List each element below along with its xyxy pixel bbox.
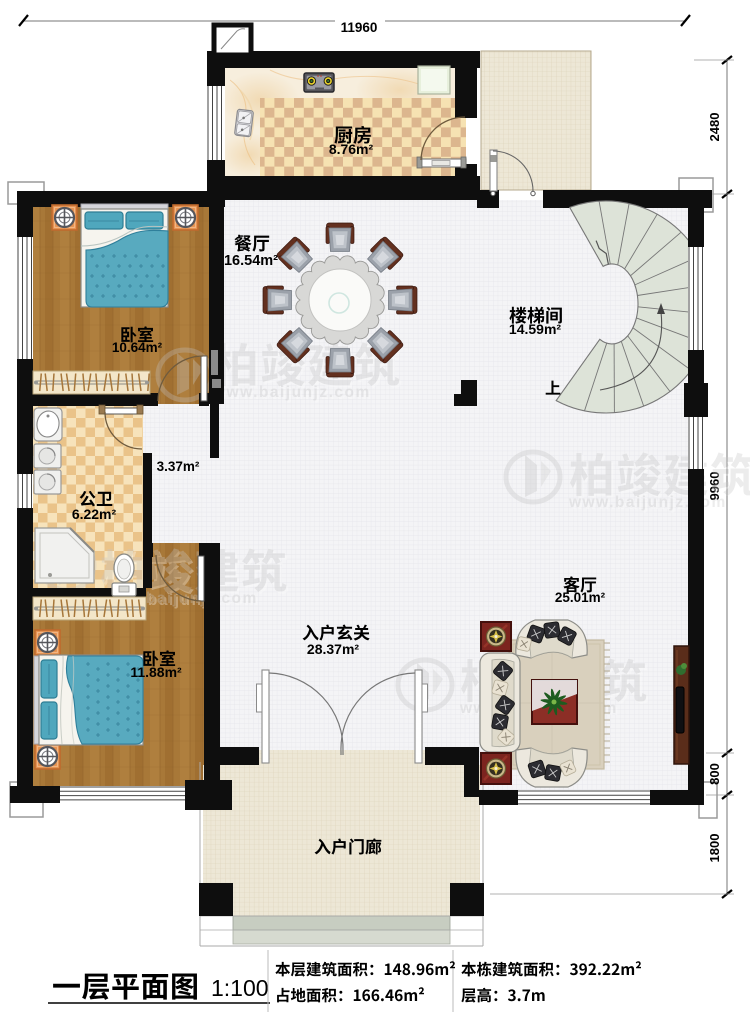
svg-text:10.64m²: 10.64m²: [112, 340, 163, 355]
svg-text:14.59m²: 14.59m²: [509, 321, 561, 337]
svg-text:16.54m²: 16.54m²: [224, 253, 278, 269]
svg-text:3.37m²: 3.37m²: [157, 459, 200, 474]
svg-text:www.baijunjz.com: www.baijunjz.com: [212, 384, 371, 401]
svg-text:11.88m²: 11.88m²: [130, 664, 182, 680]
svg-text:28.37m²: 28.37m²: [307, 641, 359, 657]
svg-text:2480: 2480: [707, 113, 722, 142]
svg-text:11960: 11960: [341, 20, 378, 35]
svg-text:25.01m²: 25.01m²: [555, 590, 606, 605]
svg-text:800: 800: [707, 763, 722, 785]
svg-text:6.22m²: 6.22m²: [72, 506, 117, 522]
svg-text:1:100: 1:100: [211, 975, 269, 1001]
svg-text:8.76m²: 8.76m²: [329, 141, 374, 157]
svg-text:1800: 1800: [707, 834, 722, 863]
